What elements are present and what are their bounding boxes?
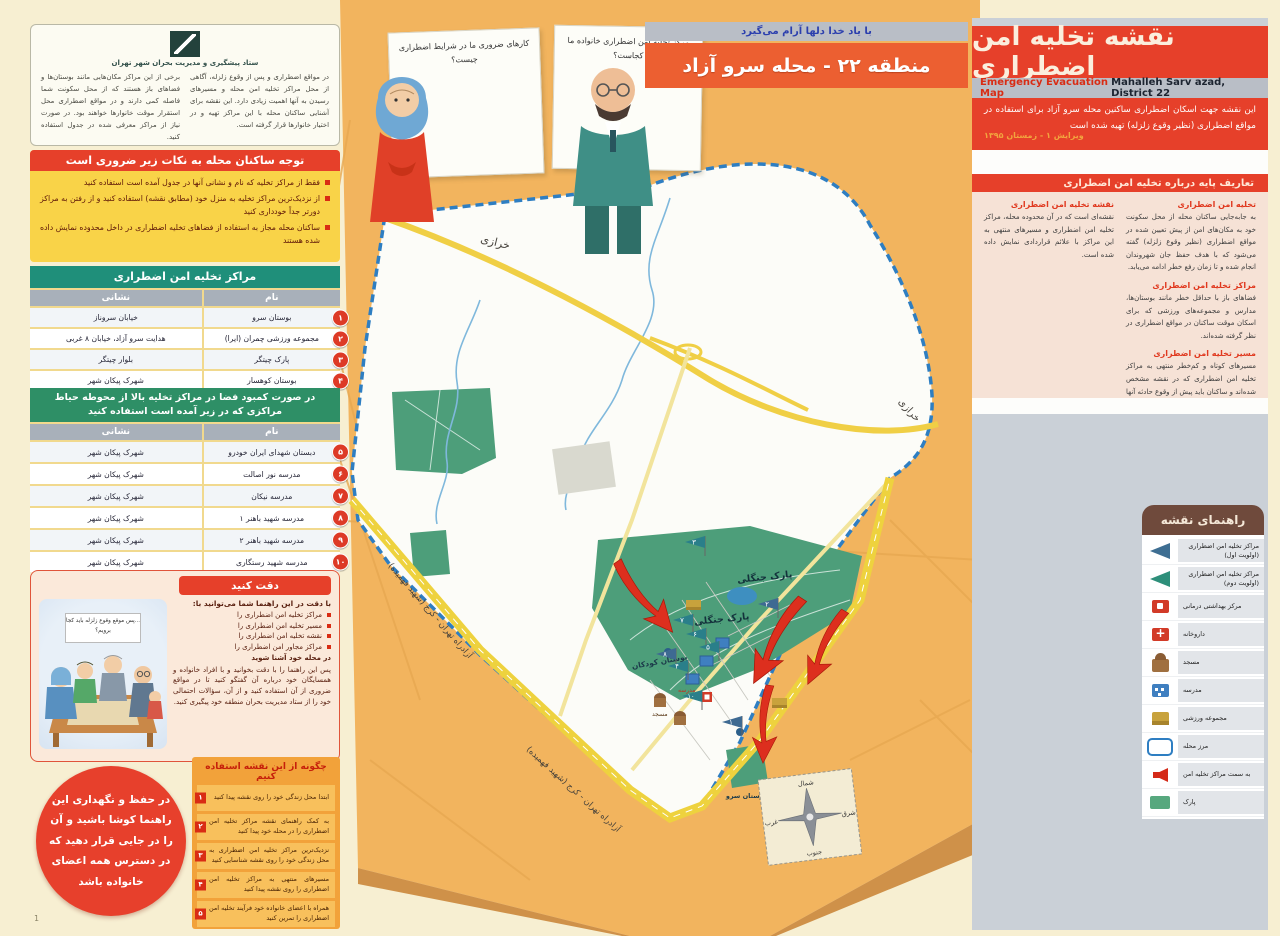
legend-row: مرز محله xyxy=(1142,733,1264,761)
row-number-badge: ۱ xyxy=(332,309,349,326)
legend-title: راهنمای نقشه xyxy=(1142,505,1264,535)
page-number: 1 xyxy=(34,914,39,923)
sports-complex-icon xyxy=(1152,712,1169,725)
health-center-icon xyxy=(1152,600,1169,613)
health-center-icon-window xyxy=(705,695,710,700)
poster-title: نقشه تخلیه امن اضطراری xyxy=(972,26,1268,78)
table-row: ۱۰مدرسه شهید رستگاریشهرک پیکان شهر xyxy=(30,552,340,572)
attention-intro: با دقت در این راهنما شما می‌توانید با: xyxy=(173,599,331,608)
legend-row: مرکز بهداشتی درمانی xyxy=(1142,593,1264,621)
right-sidebar: نقشه تخلیه امن اضطراری Emergency Evacuat… xyxy=(972,18,1268,930)
row-number-badge: ۶ xyxy=(332,466,349,483)
column-header-name: نام xyxy=(204,290,340,306)
svg-text:۷: ۷ xyxy=(680,617,684,625)
compass-west-label: غرب xyxy=(764,818,779,828)
table-row: ۵دبستان شهدای ایران خودروشهرک پیکان شهر xyxy=(30,442,340,462)
organization-name: ستاد پیشگیری و مدیریت بحران شهر تهران xyxy=(41,59,329,67)
compass-rose: شمال جنوب شرق غرب xyxy=(758,769,862,866)
how-to-step: ۱ابتدا محل زندگی خود را روی نقشه پیدا کن… xyxy=(197,785,335,811)
row-number-badge: ۸ xyxy=(332,510,349,527)
family-illustration: ...پس موقع وقوع زلزله باید کجا برویم؟ xyxy=(39,599,167,749)
flag-priority-2-icon xyxy=(1150,571,1170,587)
school-icon xyxy=(1152,684,1169,697)
compass-east-label: شرق xyxy=(841,808,856,818)
neighborhood-border-icon xyxy=(1147,738,1173,756)
svg-text:۸: ۸ xyxy=(663,651,667,659)
legend-row: مدرسه xyxy=(1142,677,1264,705)
table-row: ۳پارک چیتگربلوار چیتگر xyxy=(30,350,340,369)
title-english: Emergency Evacuation Map xyxy=(980,77,1111,99)
attention-item: مراکز تخلیه امن اضطراری را xyxy=(173,611,331,619)
organization-logo xyxy=(170,31,200,57)
attention-outro: در محله خود آشنا شوید xyxy=(173,654,331,662)
table-row: ۱بوستان سروخیابان سروناز xyxy=(30,308,340,327)
park-icon xyxy=(1150,796,1170,809)
svg-text:۱۰: ۱۰ xyxy=(688,693,695,701)
definition-item: مراکز تخلیه امن اضطراریفضاهای باز با حدا… xyxy=(1126,281,1256,342)
legend-row: داروخانه xyxy=(1142,621,1264,649)
attention-item: مراکز مجاور امن اضطراری را xyxy=(173,643,331,651)
table-row: ۹مدرسه شهید باهنر ۲شهرک پیکان شهر xyxy=(30,530,340,550)
vacant-block xyxy=(552,441,616,495)
legend-row: مجموعه ورزشی xyxy=(1142,705,1264,733)
definitions-title: تعاریف پایه درباره تخلیه امن اضطراری xyxy=(972,174,1268,192)
evacuation-centers-table: مراکز تخلیه امن اضطراری نام نشانی ۱بوستا… xyxy=(30,266,340,390)
column-header-name: نام xyxy=(204,424,340,440)
column-header-address: نشانی xyxy=(30,424,202,440)
legend-row: به سمت مراکز تخلیه امن xyxy=(1142,761,1264,789)
legend-row: مراکز تخلیه امن اضطراری (اولویت دوم) xyxy=(1142,565,1264,593)
table-row: ۶مدرسه نور اصالتشهرک پیکان شهر xyxy=(30,464,340,484)
evacuation-arrow-icon xyxy=(1153,768,1168,782)
attention-item: مسیر تخلیه امن اضطراری را xyxy=(173,622,331,630)
god-remembrance-strip: با یاد خدا دلها آرام می‌گیرد xyxy=(645,22,968,41)
definition-item: تخلیه امن اضطراریبه جابه‌جایی ساکنان محل… xyxy=(1126,200,1256,274)
organization-intro-left: برخی از این مراکز مکان‌هایی مانند بوستان… xyxy=(41,71,180,143)
overflow-centers-table: در صورت کمبود فضا در مراکز تخلیه بالا از… xyxy=(30,388,340,572)
overflow-centers-table-title: در صورت کمبود فضا در مراکز تخلیه بالا از… xyxy=(30,388,340,422)
attention-box: دقت کنید با دقت در این راهنما شما می‌توا… xyxy=(30,570,340,762)
district-banner: منطقه ۲۲ - محله سرو آزاد xyxy=(645,43,968,88)
attention-paragraph: پس این راهنما را با دقت بخوانید و با افر… xyxy=(173,665,331,708)
evacuation-poster: خرازی خرازی آزادراه تهران - کرج (شهید فه… xyxy=(0,0,1280,936)
organization-intro-right: در مواقع اضطراری و پس از وقوع زلزله، آگا… xyxy=(190,71,329,143)
pharmacy-icon xyxy=(1152,628,1169,641)
row-number-badge: ۳ xyxy=(332,351,349,368)
table-row: ۸مدرسه شهید باهنر ۱شهرک پیکان شهر xyxy=(30,508,340,528)
edition-label: ویرایش ۱ - زمستان ۱۳۹۵ xyxy=(984,131,1084,140)
row-number-badge: ۷ xyxy=(332,488,349,505)
column-header-address: نشانی xyxy=(30,290,202,306)
notice-item: ساکنان محله مجاز به استفاده از فضاهای تخ… xyxy=(40,222,330,247)
step-number: ۲ xyxy=(195,822,206,833)
park-pond xyxy=(727,587,757,605)
notice-item: از نزدیک‌ترین مراکز تخلیه به منزل خود (م… xyxy=(40,193,330,218)
park-marker-2 xyxy=(736,728,744,736)
definition-item: نقشه تخلیه امن اضطرارینقشه‌ای است که در … xyxy=(984,200,1114,261)
family-speech-bubble: ...پس موقع وقوع زلزله باید کجا برویم؟ xyxy=(65,613,141,643)
row-number-badge: ۴ xyxy=(332,372,349,389)
definitions-panel: تخلیه امن اضطراریبه جابه‌جایی ساکنان محل… xyxy=(972,192,1268,398)
legend-row: مسجد xyxy=(1142,649,1264,677)
how-to-step: ۲به کمک راهنمای نقشه مراکز تخلیه امن اضط… xyxy=(197,814,335,840)
how-to-step: ۳نزدیک‌ترین مراکز تخلیه امن اضطراری به م… xyxy=(197,843,335,869)
row-number-badge: ۵ xyxy=(332,444,349,461)
step-number: ۴ xyxy=(195,880,206,891)
legend-row: مراکز تخلیه امن اضطراری (اولویت اول) xyxy=(1142,537,1264,565)
row-number-badge: ۲ xyxy=(332,330,349,347)
step-number: ۳ xyxy=(195,851,206,862)
svg-text:۶: ۶ xyxy=(693,631,697,639)
title-location: Mahalleh Sarv azad, District 22 xyxy=(1111,77,1260,99)
legend-row: پارک xyxy=(1142,789,1264,817)
mosque-icon xyxy=(1152,659,1169,672)
attention-item: نقشه تخلیه امن اضطراری را xyxy=(173,632,331,640)
step-number: ۱ xyxy=(195,793,206,804)
woman-character xyxy=(350,52,458,224)
how-to-step: ۴مسیرهای منتهی به مراکز تخلیه امن اضطرار… xyxy=(197,872,335,898)
svg-text:۴: ۴ xyxy=(675,663,679,671)
svg-text:۳: ۳ xyxy=(692,539,696,547)
mosque-label: مسجد xyxy=(652,711,668,718)
keep-guide-circle: در حفظ و نگهداری این راهنما کوشا باشید و… xyxy=(36,766,186,916)
man-character xyxy=(555,56,670,258)
flag-priority-1-icon xyxy=(1150,543,1170,559)
step-number: ۵ xyxy=(195,909,206,920)
how-to-step: ۵همراه با اعضای خانواده خود فرآیند تخلیه… xyxy=(197,901,335,927)
title-subtitle-strip: Emergency Evacuation Map Mahalleh Sarv a… xyxy=(972,78,1268,98)
map-legend: راهنمای نقشه مراکز تخلیه امن اضطراری (او… xyxy=(1142,505,1264,819)
divider-band xyxy=(972,150,1268,174)
organization-box: ستاد پیشگیری و مدیریت بحران شهر تهران در… xyxy=(30,24,340,146)
evacuation-centers-table-title: مراکز تخلیه امن اضطراری xyxy=(30,266,340,288)
residents-notice-title: توجه ساکنان محله به نکات زیر ضروری است xyxy=(30,150,340,171)
row-number-badge: ۹ xyxy=(332,532,349,549)
residents-notice-box: توجه ساکنان محله به نکات زیر ضروری است ف… xyxy=(30,150,340,262)
how-to-use-title: چگونه از این نقشه استفاده کنیم xyxy=(197,762,335,782)
svg-text:۲: ۲ xyxy=(765,601,769,609)
notice-item: فقط از مراکز تخلیه که نام و نشانی آنها د… xyxy=(40,177,330,189)
table-row: ۷مدرسه نیکانشهرک پیکان شهر xyxy=(30,486,340,506)
how-to-use-panel: چگونه از این نقشه استفاده کنیم ۱ابتدا مح… xyxy=(192,757,340,929)
row-number-badge: ۱۰ xyxy=(332,554,349,571)
attention-title: دقت کنید xyxy=(179,576,331,595)
svg-text:۱: ۱ xyxy=(729,719,733,727)
poster-description: این نقشه جهت اسکان اضطراری ساکنین محله س… xyxy=(972,98,1268,150)
divider-band xyxy=(972,398,1268,414)
svg-text:۵: ۵ xyxy=(706,644,710,652)
table-row: ۲مجموعه ورزشی چمران (ایرا)هدایت سرو آزاد… xyxy=(30,329,340,348)
